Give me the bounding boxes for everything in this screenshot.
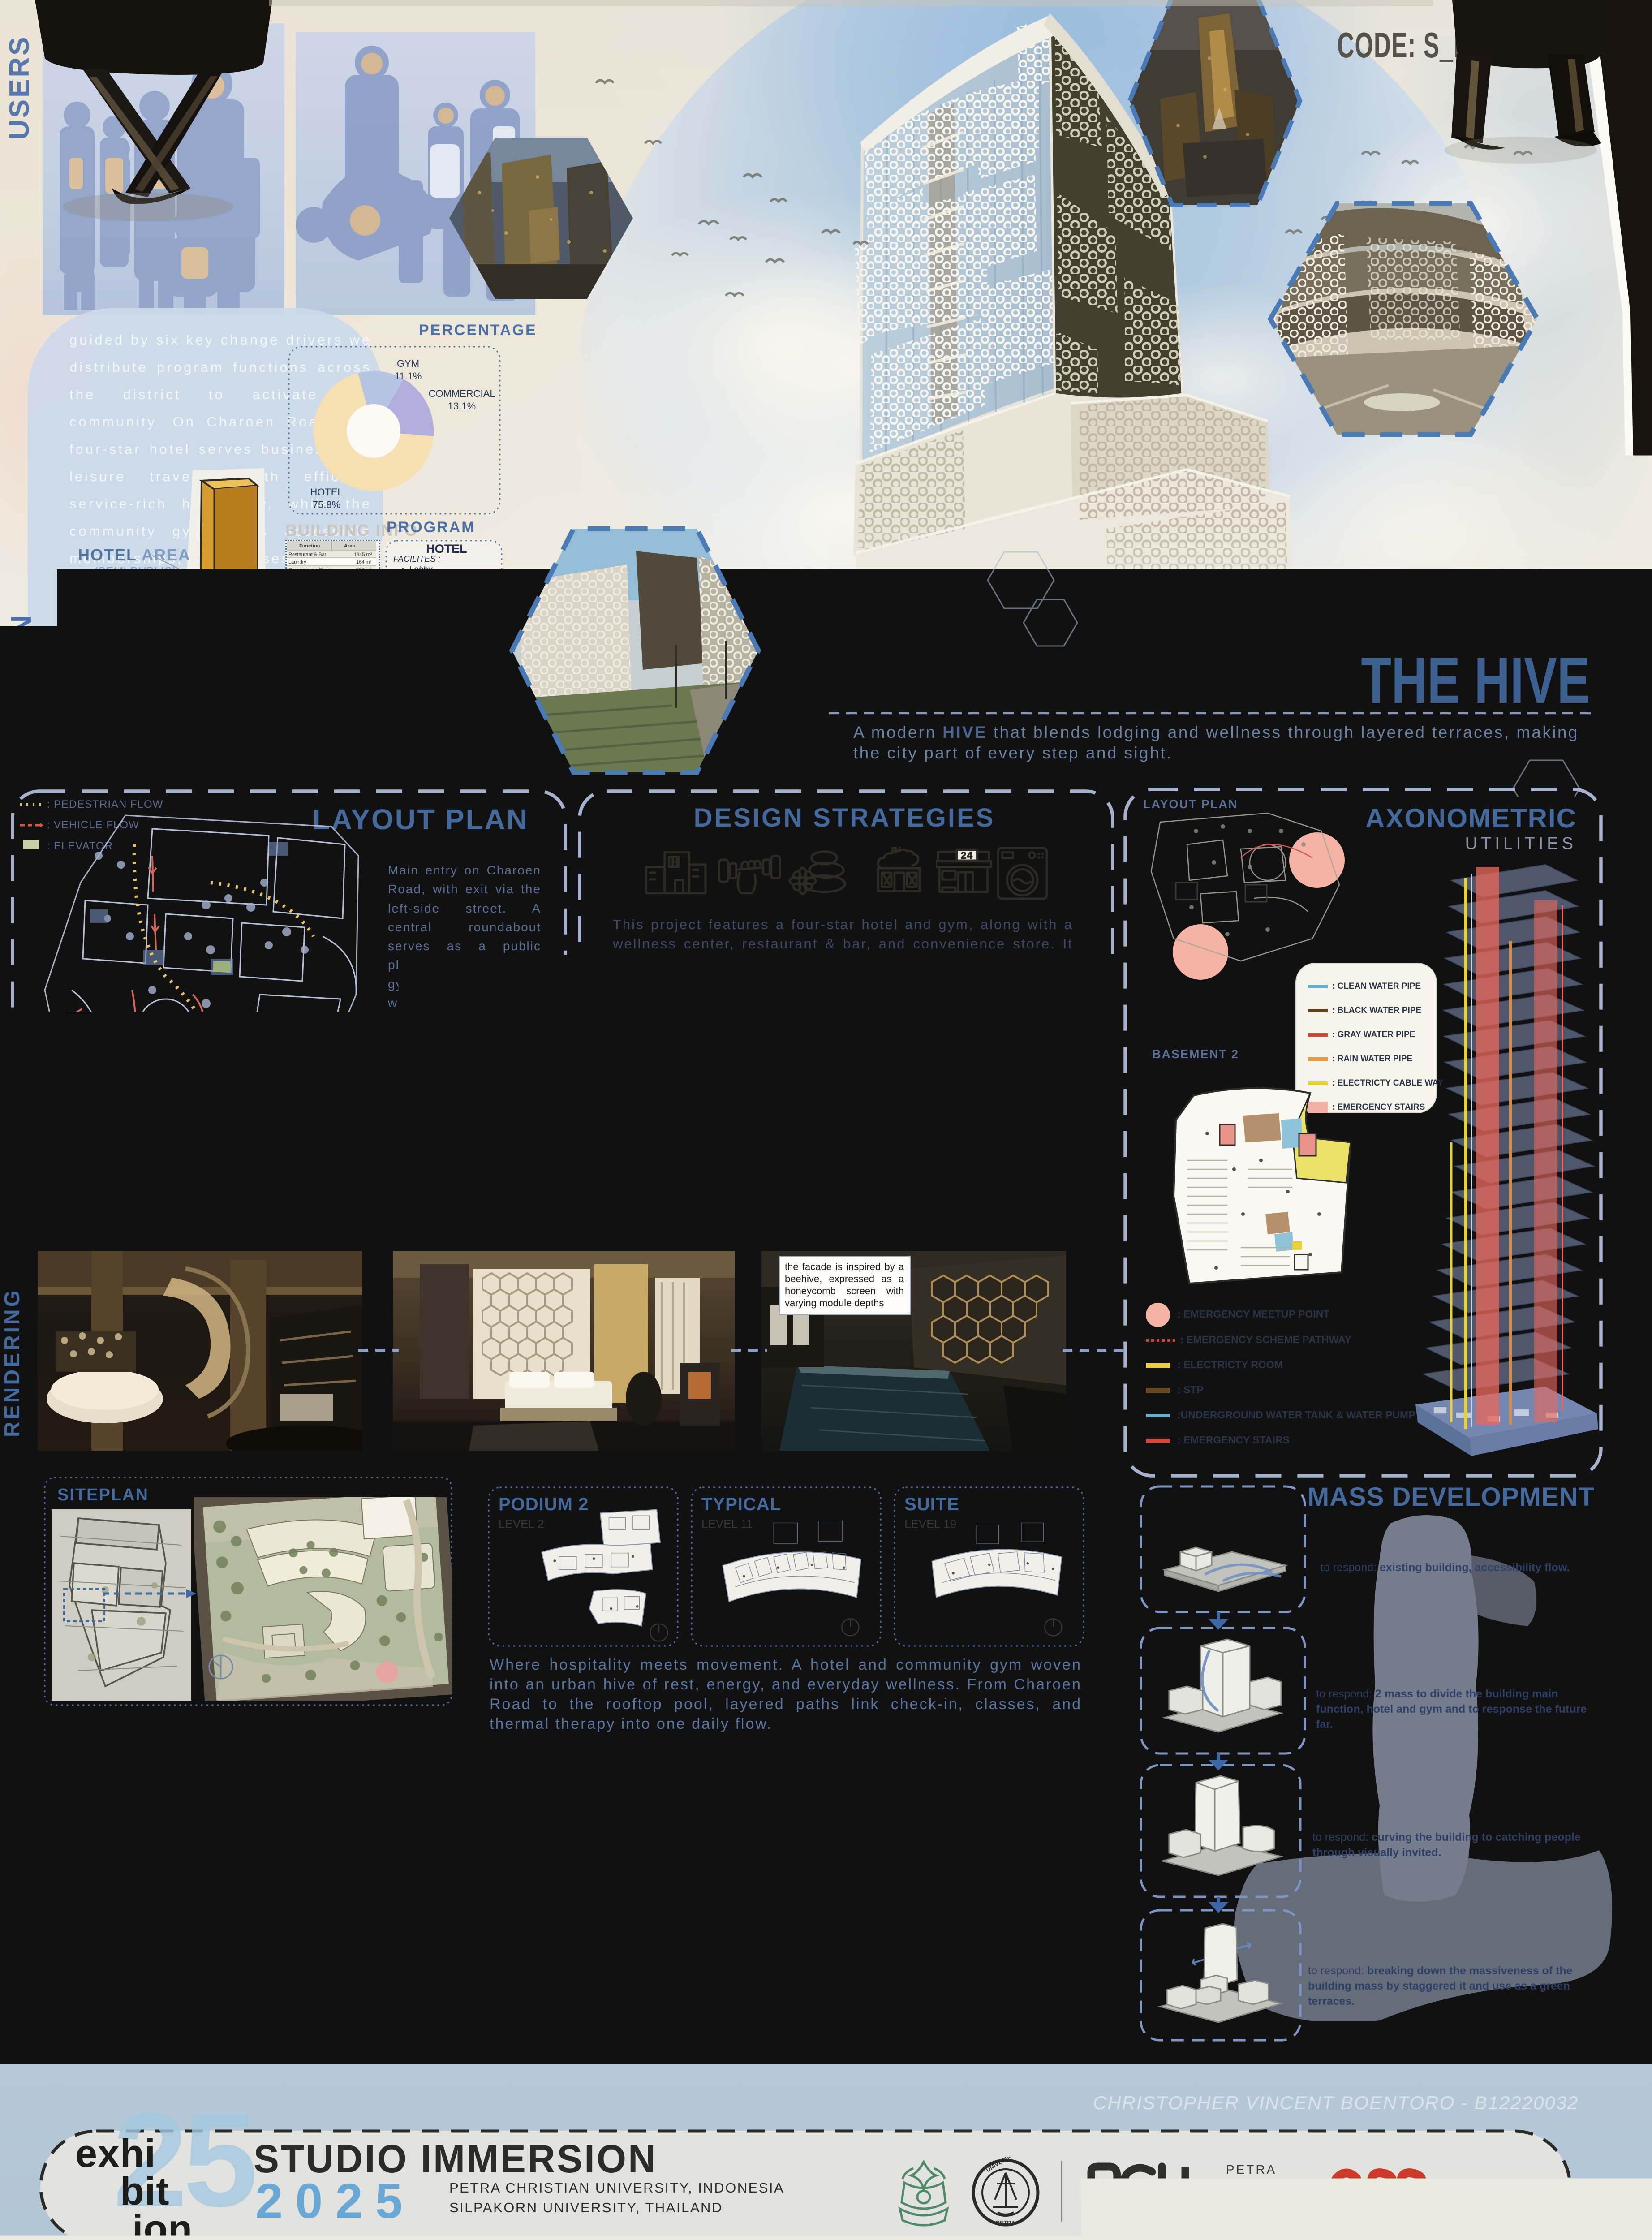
svg-text:RELAXATION: RELAXATION: [751, 1062, 819, 1074]
svg-text:PETRA: PETRA: [996, 2219, 1016, 2226]
svg-text:COMMERCIAL: COMMERCIAL: [858, 1199, 931, 1211]
svg-text:SLEEP: SLEEP: [627, 1062, 662, 1074]
svg-text:CONVENIENCE: CONVENIENCE: [747, 1199, 826, 1211]
svg-text:HOTEL: HOTEL: [876, 1062, 912, 1074]
svg-text:DINING: DINING: [624, 1199, 661, 1211]
svg-text:z z: z z: [624, 1017, 636, 1028]
svg-text:H: H: [671, 857, 679, 867]
svg-text:RECOVERY: RECOVERY: [617, 1129, 678, 1142]
svg-text:RECREATION: RECREATION: [862, 1129, 932, 1142]
svg-text:LAUNDRY: LAUNDRY: [687, 1199, 739, 1211]
svg-text:SWIMMING: SWIMMING: [684, 1129, 742, 1142]
svg-text:MEET: MEET: [697, 1062, 727, 1074]
svg-text:24: 24: [960, 850, 972, 862]
svg-text:GYM: GYM: [770, 1129, 794, 1142]
svg-text:STORE: STORE: [766, 1213, 803, 1225]
svg-text:"CONNECTED BY THE HIVE": "CONNECTED BY THE HIVE": [929, 1161, 1091, 1174]
